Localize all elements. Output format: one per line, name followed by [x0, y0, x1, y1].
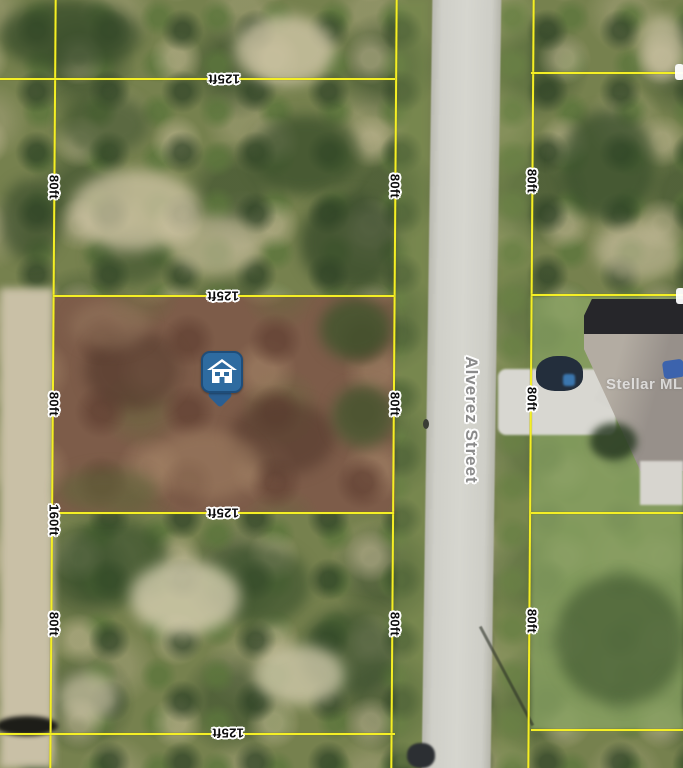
dirt-patch: [150, 430, 260, 500]
dim-label-80ft: 80ft: [388, 174, 403, 198]
sand-patch: [255, 645, 345, 705]
house-roof-dark: [584, 299, 683, 336]
boundary-line-horizontal-4: [0, 733, 395, 735]
street-name-label: Alverez Street: [461, 356, 481, 483]
tree-cluster: [250, 115, 360, 195]
dim-label-80ft: 80ft: [47, 612, 62, 636]
dim-label-125ft: 125ft: [207, 506, 239, 521]
dim-label-80ft: 80ft: [525, 387, 540, 411]
dim-label-125ft: 125ft: [208, 72, 240, 87]
bush-patch: [320, 298, 392, 360]
boundary-line-horizontal-1: [0, 78, 395, 80]
vehicle-on-road: [407, 743, 435, 768]
boundary-line-horizontal-right-3: [531, 512, 683, 514]
dim-label-fragment: [675, 64, 683, 80]
dim-label-80ft: 80ft: [47, 392, 62, 416]
boundary-line-horizontal-right-1: [531, 72, 683, 74]
sand-patch: [595, 225, 680, 280]
satellite-parcel-map: 125ft 125ft 125ft 125ft 80ft 80ft 80ft 8…: [0, 0, 683, 768]
dim-label-125ft: 125ft: [212, 726, 244, 741]
parked-car: [536, 356, 583, 391]
dim-label-80ft: 80ft: [525, 609, 540, 633]
house-glyph: [206, 356, 238, 388]
bush-patch: [58, 468, 158, 513]
tree-cluster: [555, 575, 683, 705]
dim-label-160ft: 160ft: [47, 504, 62, 536]
sand-patch: [235, 15, 335, 85]
tree-cluster: [560, 110, 655, 220]
bush-patch: [332, 385, 395, 447]
house-marker-icon[interactable]: [201, 351, 243, 393]
dim-label-80ft: 80ft: [388, 392, 403, 416]
car-window-glint: [563, 374, 575, 386]
dim-label-80ft: 80ft: [525, 169, 540, 193]
dim-label-80ft: 80ft: [47, 175, 62, 199]
tree-cluster: [300, 195, 400, 290]
bush-patch: [590, 423, 637, 460]
stellar-mls-watermark: Stellar MLS: [606, 376, 683, 393]
patio: [640, 461, 683, 505]
dim-label-fragment: [676, 288, 683, 304]
dim-label-80ft: 80ft: [388, 612, 403, 636]
tree-cluster: [0, 0, 140, 70]
dim-label-125ft: 125ft: [207, 289, 239, 304]
sand-patch: [130, 560, 240, 635]
boundary-line-horizontal-right-4: [531, 729, 683, 731]
sand-patch: [170, 215, 260, 275]
mailbox-dot: [423, 419, 429, 429]
tree-cluster: [60, 95, 150, 155]
sand-patch: [58, 672, 118, 722]
dirt-patch: [70, 300, 150, 350]
boundary-line-horizontal-right-2: [531, 294, 683, 296]
